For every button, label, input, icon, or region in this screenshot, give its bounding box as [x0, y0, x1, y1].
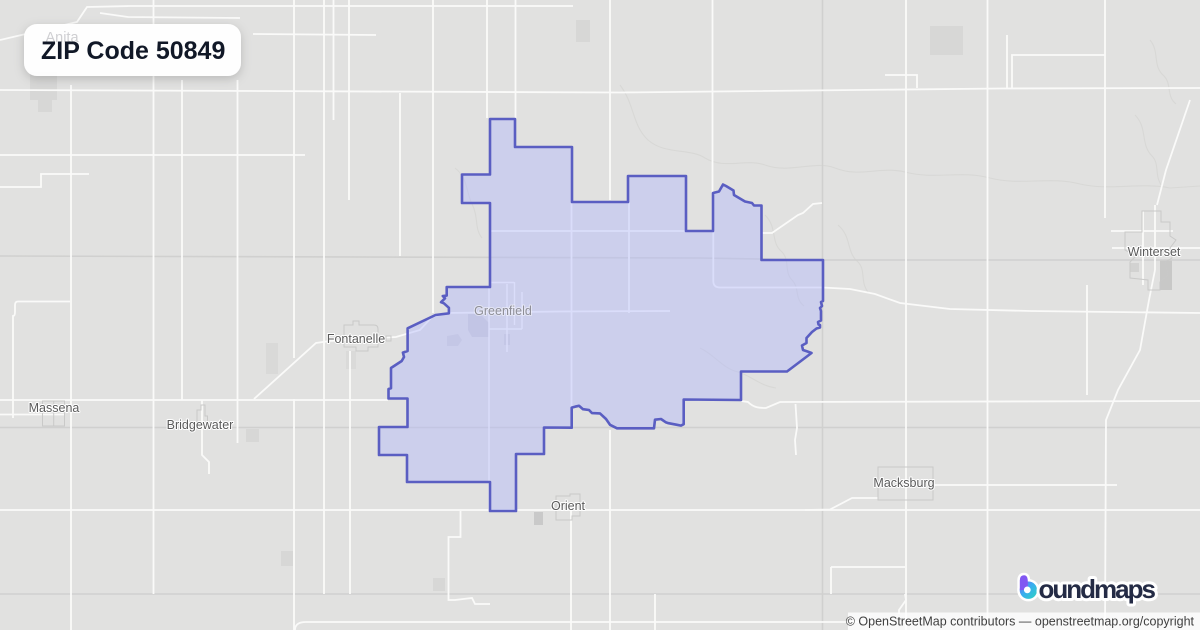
svg-text:Bridgewater: Bridgewater [167, 418, 234, 432]
svg-text:Macksburg: Macksburg [873, 476, 934, 490]
svg-text:© OpenStreetMap contributors —: © OpenStreetMap contributors — openstree… [846, 615, 1195, 629]
svg-text:oundmaps: oundmaps [1039, 574, 1156, 604]
svg-text:Greenfield: Greenfield [474, 304, 532, 318]
svg-text:Fontanelle: Fontanelle [327, 332, 385, 346]
svg-text:Massena: Massena [29, 401, 80, 415]
svg-text:ZIP Code 50849: ZIP Code 50849 [41, 37, 225, 65]
svg-text:Orient: Orient [551, 499, 586, 513]
svg-text:Winterset: Winterset [1128, 245, 1181, 259]
